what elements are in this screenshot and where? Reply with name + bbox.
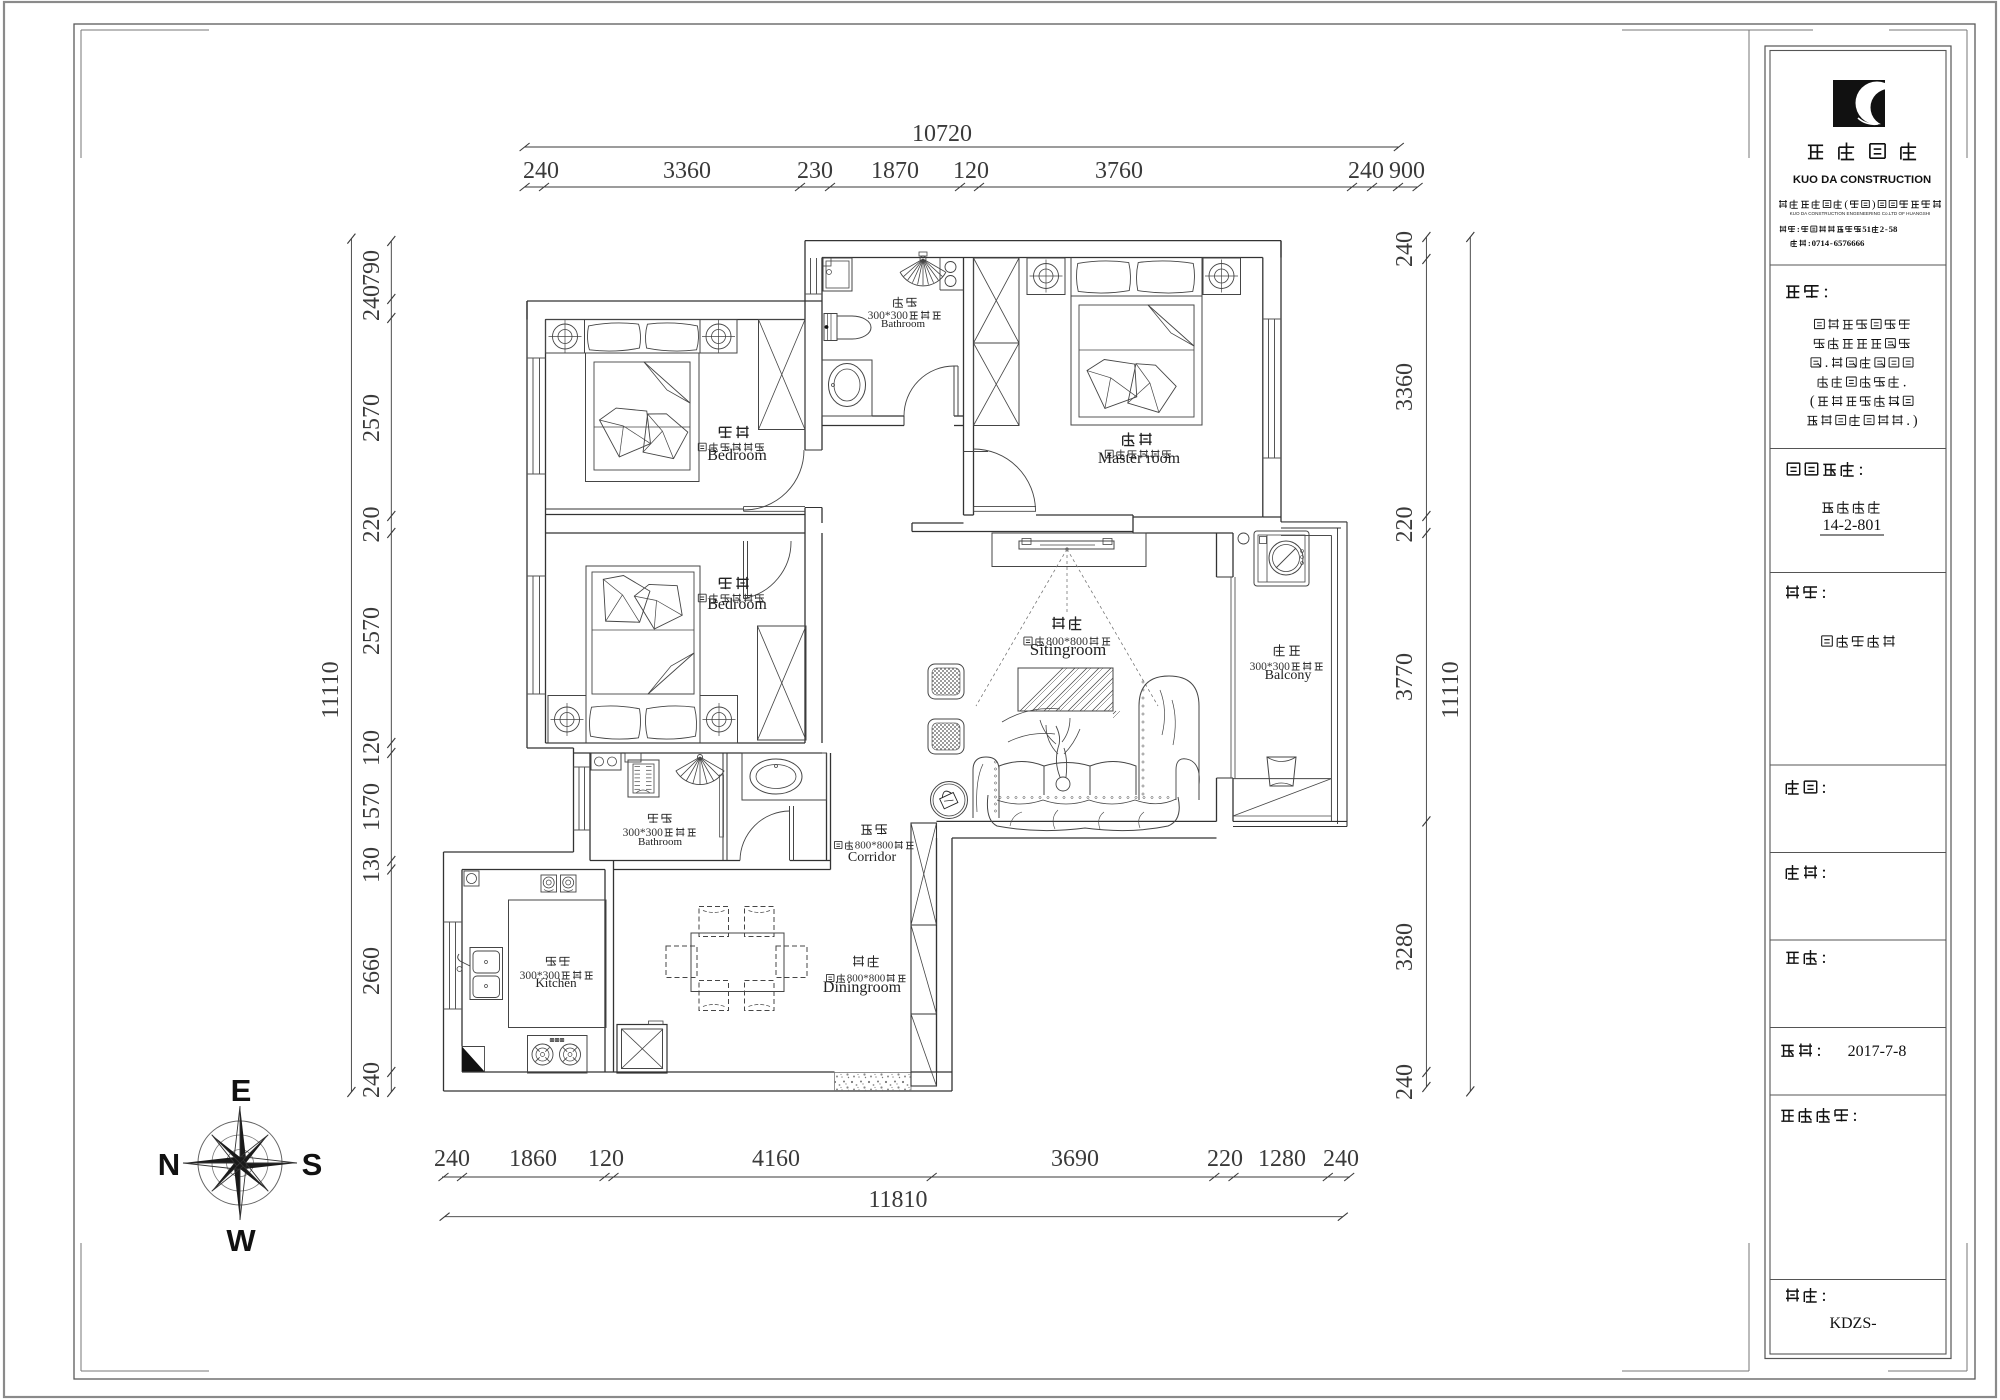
svg-text:240: 240 [359,285,385,321]
svg-text::: : [1858,459,1863,479]
svg-text:220: 220 [359,507,385,543]
svg-text:2017-7-8: 2017-7-8 [1848,1043,1907,1060]
svg-text::: : [1821,582,1826,602]
svg-text:Sitingroom: Sitingroom [1030,640,1107,659]
svg-text::: : [1797,224,1800,234]
svg-text:1860: 1860 [509,1146,557,1172]
svg-text:11810: 11810 [868,1187,927,1213]
svg-text:Master room: Master room [1098,450,1181,467]
svg-text:Bathroom: Bathroom [638,836,682,848]
svg-text:2660: 2660 [359,947,385,995]
svg-text:Bathroom: Bathroom [881,318,925,330]
svg-text:3690: 3690 [1051,1146,1099,1172]
svg-text:120: 120 [588,1146,624,1172]
svg-text::: : [1816,1040,1821,1060]
svg-text:E: E [231,1073,252,1108]
svg-text:790: 790 [359,250,385,286]
svg-text:11110: 11110 [318,661,344,718]
svg-text:1570: 1570 [359,783,385,831]
svg-text:6: 6 [1860,238,1865,248]
svg-text:2570: 2570 [359,394,385,442]
svg-text:240: 240 [1323,1146,1359,1172]
svg-text:W: W [226,1223,256,1258]
svg-text:120: 120 [359,730,385,766]
svg-text:240: 240 [523,158,559,184]
svg-text:(: ( [1810,394,1815,410]
svg-text::: : [1821,777,1826,797]
svg-text:14-2-801: 14-2-801 [1823,517,1882,534]
svg-text:220: 220 [1207,1146,1243,1172]
svg-text:3760: 3760 [1095,158,1143,184]
svg-text::: : [1821,862,1826,882]
svg-text:): ) [1872,199,1876,211]
svg-text::: : [1823,281,1828,302]
svg-text:240: 240 [359,1062,385,1098]
svg-text:230: 230 [797,158,833,184]
svg-text:-: - [1830,238,1833,248]
svg-text:900: 900 [1389,158,1425,184]
svg-text:10720: 10720 [912,121,972,147]
svg-text::: : [1821,947,1826,967]
svg-text:Bedroom: Bedroom [707,447,767,464]
svg-text:Diningroom: Diningroom [823,979,902,996]
svg-text:120: 120 [953,158,989,184]
svg-text:Bedroom: Bedroom [707,596,767,613]
svg-text::: : [1808,238,1811,248]
svg-text:.: . [1906,413,1910,429]
svg-text:.: . [1903,374,1907,390]
svg-text:Balcony: Balcony [1265,668,1312,683]
svg-text::: : [1821,1285,1826,1305]
svg-text:3280: 3280 [1392,923,1418,971]
svg-text:3770: 3770 [1392,653,1418,701]
svg-text:KDZS-: KDZS- [1829,1315,1876,1332]
svg-text:220: 220 [1392,507,1418,543]
svg-text:3360: 3360 [663,158,711,184]
svg-text:Kitchen: Kitchen [535,975,577,990]
svg-text:(: ( [1844,199,1848,211]
svg-text:Corridor: Corridor [848,850,897,865]
svg-text:N: N [158,1147,180,1182]
svg-text:130: 130 [359,847,385,883]
svg-text:1870: 1870 [871,158,919,184]
svg-text:240: 240 [1392,1064,1418,1100]
svg-text:.: . [1825,355,1829,371]
svg-text::: : [1852,1105,1857,1125]
svg-text:240: 240 [434,1146,470,1172]
svg-text:KUO DA CONSTRUCTION: KUO DA CONSTRUCTION [1793,174,1931,186]
svg-text:-: - [1885,224,1888,234]
svg-text:11110: 11110 [1438,661,1464,718]
svg-text:240: 240 [1348,158,1384,184]
svg-text:2570: 2570 [359,607,385,655]
svg-text:8: 8 [1893,224,1898,234]
svg-text:1: 1 [1867,224,1871,234]
svg-text:240: 240 [1392,231,1418,267]
svg-text:4160: 4160 [752,1146,800,1172]
svg-text:): ) [1913,413,1918,429]
svg-text:KUO DA CONSTRUCTION ENGENEERIN: KUO DA CONSTRUCTION ENGENEERING Co.LTD O… [1790,211,1931,216]
svg-text:1280: 1280 [1258,1146,1306,1172]
svg-text:3360: 3360 [1392,363,1418,411]
svg-text:S: S [302,1147,323,1182]
